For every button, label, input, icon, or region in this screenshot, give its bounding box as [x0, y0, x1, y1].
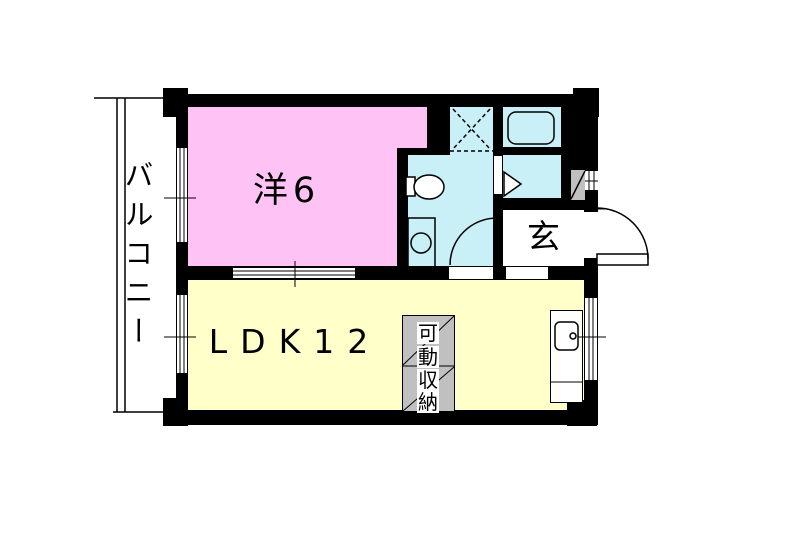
opening-entrance-ldk — [506, 267, 548, 279]
washbasin-area-floor — [503, 155, 561, 198]
entrance-door-arc — [597, 208, 648, 259]
ldk-label: LDK12 — [185, 324, 405, 360]
storage-label-char-4: 納 — [417, 391, 439, 413]
washroom-floor — [408, 155, 493, 266]
corner-post-br — [567, 400, 597, 426]
western-room-label: 洋6 — [182, 172, 391, 210]
wall-bath-divider — [503, 147, 561, 155]
kitchen-counter — [550, 310, 583, 403]
corner-post-tl — [163, 88, 188, 117]
washing-machine-area — [450, 107, 493, 155]
storage-label-char-1: 可 — [417, 322, 439, 344]
pipe-space-panel — [571, 170, 585, 200]
wall-top — [163, 94, 598, 107]
storage-label-char-2: 動 — [417, 346, 439, 368]
entrance-label: 玄 — [503, 219, 584, 255]
wall-bottom — [163, 410, 598, 425]
storage-label-char-3: 収 — [417, 369, 439, 391]
balcony-label: バルコニー — [124, 160, 158, 420]
window-entrance-hatch — [585, 171, 598, 190]
window-south — [233, 268, 355, 278]
opening-bath-door — [494, 156, 502, 194]
western-room-floor-tab — [397, 107, 427, 148]
bathroom-floor — [503, 107, 561, 147]
window-kitchen — [585, 298, 597, 380]
corner-post-bl — [163, 398, 188, 426]
opening-washroom-ldk — [449, 267, 493, 279]
floor-plan: バルコニー 洋6 LDK12 玄 可 動 収 納 — [0, 0, 793, 558]
entrance-door-leaf — [597, 254, 648, 265]
wall-west-washroom — [397, 148, 408, 266]
wall-washroom-top — [397, 148, 450, 155]
opening-entrance-door — [584, 212, 598, 258]
